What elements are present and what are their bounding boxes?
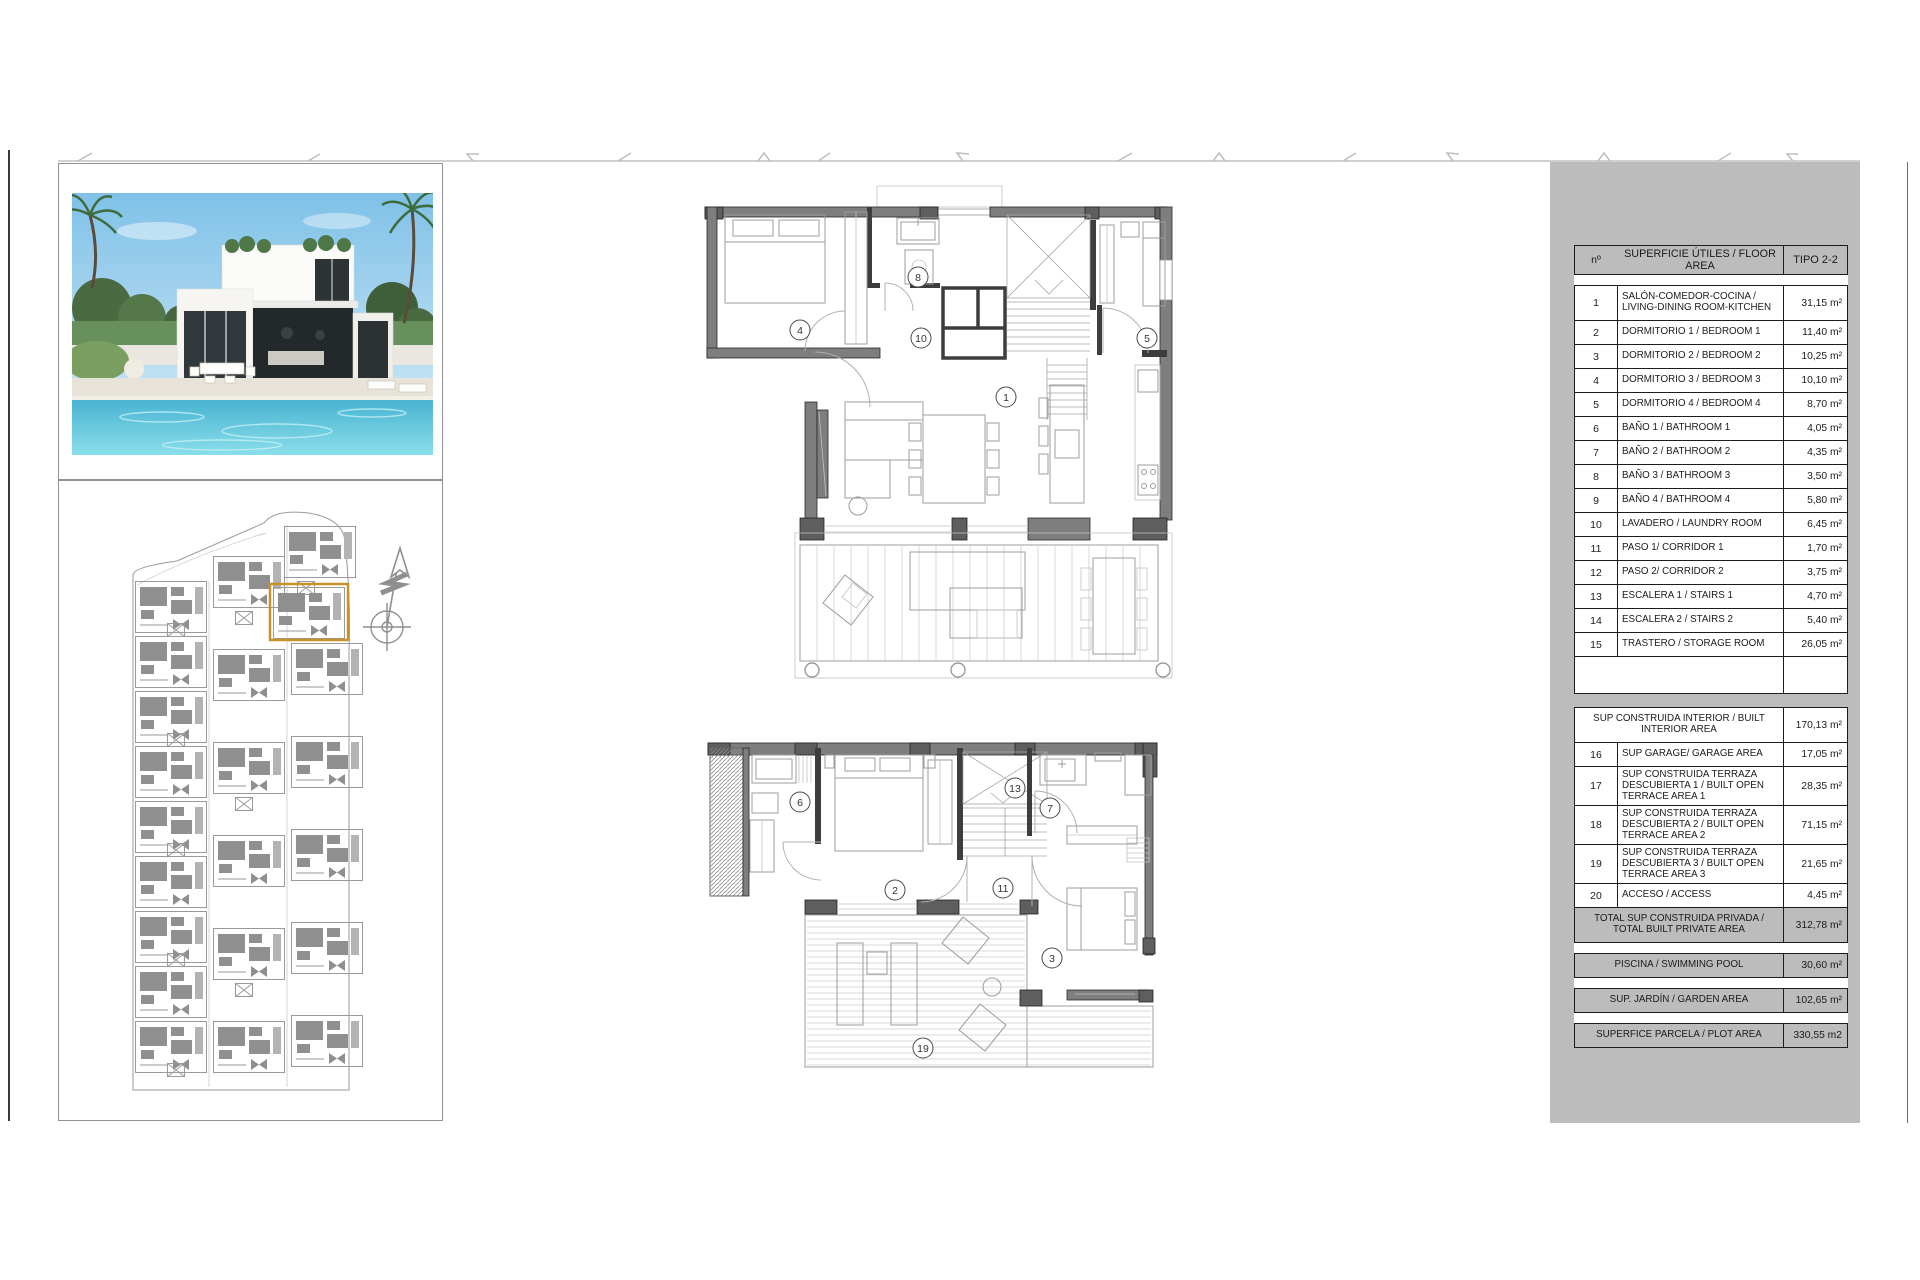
kitchen-counter <box>1135 365 1160 500</box>
kitchen-island <box>1039 385 1084 503</box>
bed <box>725 215 825 303</box>
gap <box>1574 694 1848 707</box>
room-label: 13 <box>1009 783 1021 795</box>
room-label: 2 <box>892 885 898 897</box>
table-row: 13ESCALERA 1 / STAIRS 14,70 m² <box>1575 584 1847 608</box>
room-label: 8 <box>915 272 921 284</box>
table-row: 16SUP GARAGE/ GARAGE AREA17,05 m² <box>1575 742 1847 766</box>
table-row: 6BAÑO 1 / BATHROOM 14,05 m² <box>1575 416 1847 440</box>
table-row: 3DORMITORIO 2 / BEDROOM 210,25 m² <box>1575 344 1847 368</box>
summary-plot-row: SUPERFICE PARCELA / PLOT AREA330,55 m2 <box>1574 1023 1848 1048</box>
table-row: 11PASO 1/ CORRIDOR 11,70 m² <box>1575 536 1847 560</box>
washbasin <box>750 755 811 872</box>
room-label: 3 <box>1049 953 1055 965</box>
table-row: 18SUP CONSTRUIDA TERRAZA DESCUBIERTA 2 /… <box>1575 805 1847 844</box>
floor-plan-lower: 6 2 13 7 11 3 19 <box>695 738 1165 1078</box>
floor-plan-upper: 4 8 10 5 1 <box>695 180 1175 690</box>
total-row: TOTAL SUP CONSTRUIDA PRIVADA / TOTAL BUI… <box>1575 907 1847 942</box>
summary-pool-row: PISCINA / SWIMMING POOL30,60 m² <box>1574 953 1848 978</box>
area-table: nº SUPERFICIE ÚTILES / FLOOR AREA TIPO 2… <box>1574 245 1848 1048</box>
built-interior-row: SUP CONSTRUIDA INTERIOR / BUILT INTERIOR… <box>1575 708 1847 742</box>
room-label: 19 <box>917 1043 929 1055</box>
highlighted-unit <box>270 584 348 640</box>
surveyor-symbol-icon <box>363 603 411 651</box>
gap <box>1574 1013 1848 1023</box>
deck <box>795 533 1172 678</box>
header-area: SUPERFICIE ÚTILES / FLOOR AREA <box>1617 246 1783 274</box>
table-row: 10LAVADERO / LAUNDRY ROOM6,45 m² <box>1575 512 1847 536</box>
bed <box>1100 222 1165 306</box>
site-plan <box>59 481 442 1120</box>
empty-row <box>1575 656 1847 693</box>
room-label: 1 <box>1003 392 1009 404</box>
header-no: nº <box>1575 246 1617 274</box>
table-row: 1SALÓN-COMEDOR-COCINA / LIVING-DINING RO… <box>1575 286 1847 320</box>
bed <box>825 755 935 851</box>
left-edge-line <box>8 150 10 1121</box>
summary-garden-row: SUP. JARDÍN / GARDEN AREA102,65 m² <box>1574 988 1848 1013</box>
table-row: 15TRASTERO / STORAGE ROOM26,05 m² <box>1575 632 1847 656</box>
gap <box>1574 275 1848 285</box>
table-row: 12PASO 2/ CORRIDOR 23,75 m² <box>1575 560 1847 584</box>
villa-photo <box>72 193 433 455</box>
table-row: 17SUP CONSTRUIDA TERRAZA DESCUBIERTA 1 /… <box>1575 766 1847 805</box>
table-row: 19SUP CONSTRUIDA TERRAZA DESCUBIERTA 3 /… <box>1575 844 1847 883</box>
table-row: 2DORMITORIO 1 / BEDROOM 111,40 m² <box>1575 320 1847 344</box>
pool <box>72 396 433 455</box>
stairs-icon <box>1007 215 1090 420</box>
room-label: 7 <box>1047 803 1053 815</box>
gap <box>1574 978 1848 988</box>
north-arrow-icon <box>381 548 409 627</box>
gap <box>1574 943 1848 953</box>
room-labels: 6 2 13 7 11 3 19 <box>790 778 1062 1058</box>
table-row: 9BAÑO 4 / BATHROOM 45,80 m² <box>1575 488 1847 512</box>
table-row: 5DORMITORIO 4 / BEDROOM 48,70 m² <box>1575 392 1847 416</box>
room-label: 11 <box>998 883 1009 895</box>
room-label: 10 <box>915 333 927 345</box>
rooms-table: 1SALÓN-COMEDOR-COCINA / LIVING-DINING RO… <box>1574 285 1848 694</box>
table-row: 14ESCALERA 2 / STAIRS 25,40 m² <box>1575 608 1847 632</box>
bed <box>1067 826 1137 950</box>
area-panel: nº SUPERFICIE ÚTILES / FLOOR AREA TIPO 2… <box>1550 162 1860 1123</box>
table-row: 7BAÑO 2 / BATHROOM 24,35 m² <box>1575 440 1847 464</box>
table-row: 20ACCESO / ACCESS4,45 m² <box>1575 883 1847 907</box>
table-row: 4DORMITORIO 3 / BEDROOM 310,10 m² <box>1575 368 1847 392</box>
dining-table <box>909 415 999 503</box>
room-label: 6 <box>797 797 803 809</box>
plan-sheet: 4 8 10 5 1 <box>0 0 1920 1280</box>
table-header: nº SUPERFICIE ÚTILES / FLOOR AREA TIPO 2… <box>1574 245 1848 275</box>
room-label: 5 <box>1144 333 1150 345</box>
washbasin <box>897 218 939 244</box>
room-label: 4 <box>797 325 803 337</box>
stairs-icon <box>963 752 1047 856</box>
right-edge-line <box>1907 162 1908 1123</box>
built-table: SUP CONSTRUIDA INTERIOR / BUILT INTERIOR… <box>1574 707 1848 943</box>
header-type: TIPO 2-2 <box>1783 246 1847 274</box>
table-row: 8BAÑO 3 / BATHROOM 33,50 m² <box>1575 464 1847 488</box>
